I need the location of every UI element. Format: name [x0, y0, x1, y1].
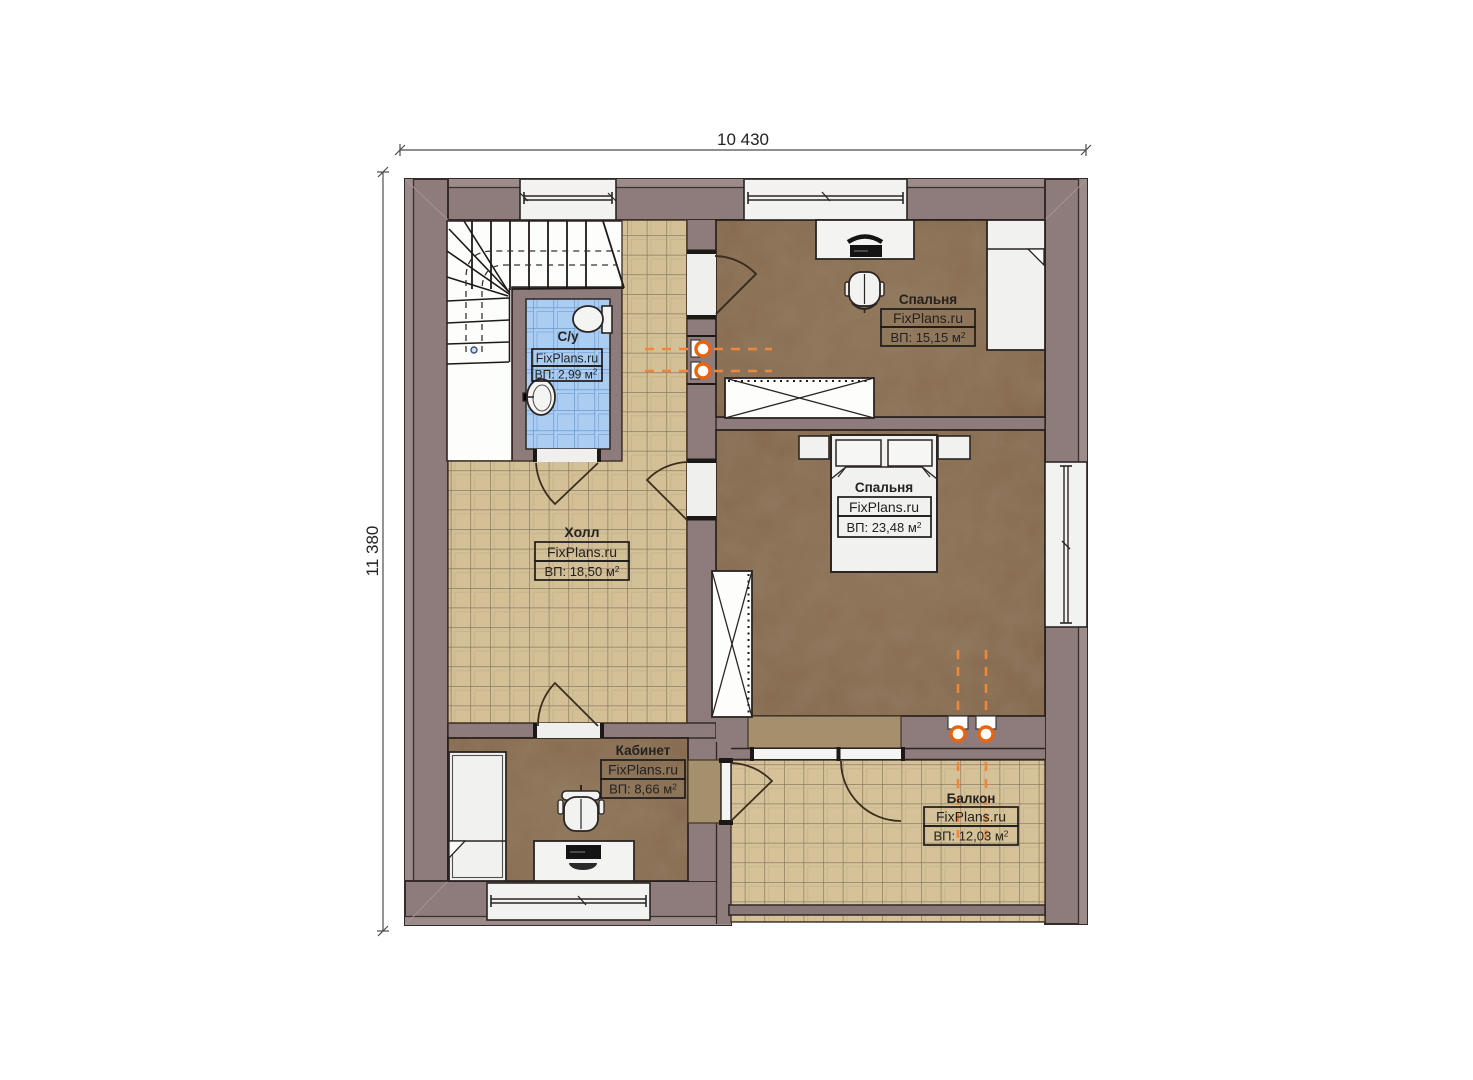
- svg-text:Кабинет: Кабинет: [616, 743, 671, 758]
- svg-text:ВП: 23,48 м2: ВП: 23,48 м2: [846, 520, 921, 535]
- svg-text:Спальня: Спальня: [855, 480, 913, 495]
- svg-text:Балкон: Балкон: [947, 791, 996, 806]
- svg-text:Спальня: Спальня: [899, 292, 957, 307]
- svg-text:ВП: 12,03 м2: ВП: 12,03 м2: [933, 829, 1008, 844]
- svg-text:ВП: 2,99 м2: ВП: 2,99 м2: [535, 368, 598, 382]
- svg-text:FixPlans.ru: FixPlans.ru: [893, 310, 963, 326]
- svg-text:11 380: 11 380: [363, 526, 382, 577]
- svg-text:FixPlans.ru: FixPlans.ru: [936, 809, 1006, 825]
- svg-text:С/у: С/у: [557, 329, 579, 344]
- svg-text:ВП: 8,66 м2: ВП: 8,66 м2: [609, 782, 677, 797]
- svg-text:ВП: 15,15 м2: ВП: 15,15 м2: [890, 330, 965, 345]
- svg-text:ВП: 18,50 м2: ВП: 18,50 м2: [544, 564, 619, 579]
- svg-text:FixPlans.ru: FixPlans.ru: [536, 352, 599, 366]
- svg-text:10 430: 10 430: [717, 130, 769, 149]
- svg-text:FixPlans.ru: FixPlans.ru: [608, 762, 678, 778]
- svg-text:FixPlans.ru: FixPlans.ru: [849, 499, 919, 515]
- svg-text:FixPlans.ru: FixPlans.ru: [547, 544, 617, 560]
- svg-text:Холл: Холл: [564, 524, 599, 540]
